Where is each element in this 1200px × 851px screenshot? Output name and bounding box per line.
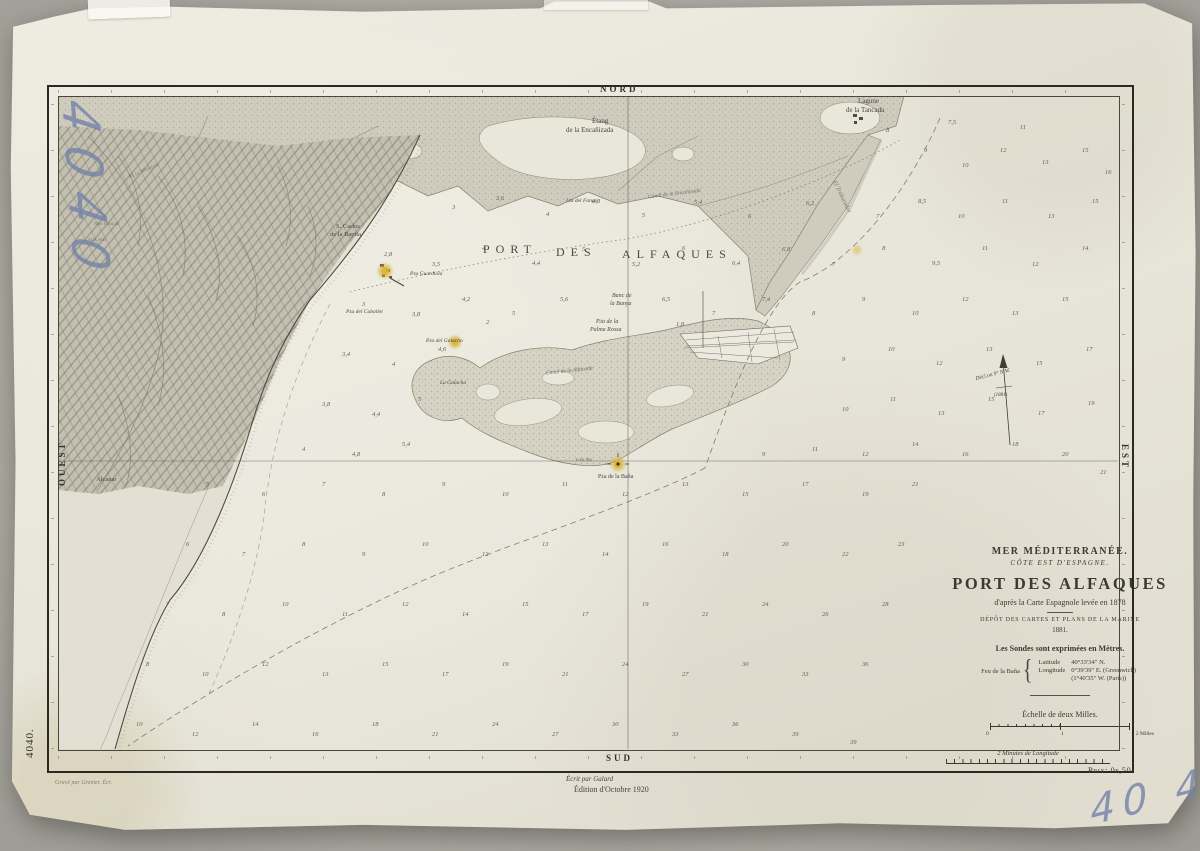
margin-label-east: EST: [1120, 444, 1130, 470]
writer-imprint: Écrit par Galard: [566, 775, 613, 783]
edition-imprint: Édition d'Octobre 1920: [574, 785, 649, 794]
margin-label-west: OUEST: [57, 440, 67, 486]
minutes-scale-bar: [946, 759, 1110, 764]
margin-label-north: NORD: [600, 84, 639, 94]
longitude-minutes-scale: 2 Minutes de Longitude: [946, 750, 1110, 764]
photo-of-nautical-chart: Décl.on 9° N.W. (1881) PORTDESALFAQUESÉt…: [0, 0, 1200, 851]
top-minute-ticks: [58, 90, 1118, 93]
tape-piece: [88, 0, 171, 19]
margin-label-south: SUD: [606, 753, 633, 763]
plate-number: 4040.: [24, 728, 36, 758]
engraver-imprint: Gravé par Grenier. Écr.: [55, 780, 112, 786]
tape-piece: [544, 0, 648, 10]
scale-tick-2: 2 Milles: [1136, 731, 1154, 737]
minutes-scale-caption: 2 Minutes de Longitude: [946, 750, 1110, 757]
left-minute-ticks: [51, 96, 54, 749]
neatline-inner: [58, 96, 1120, 751]
right-minute-ticks: [1122, 96, 1125, 749]
price-label: Prix: 0f,50: [1088, 765, 1131, 775]
